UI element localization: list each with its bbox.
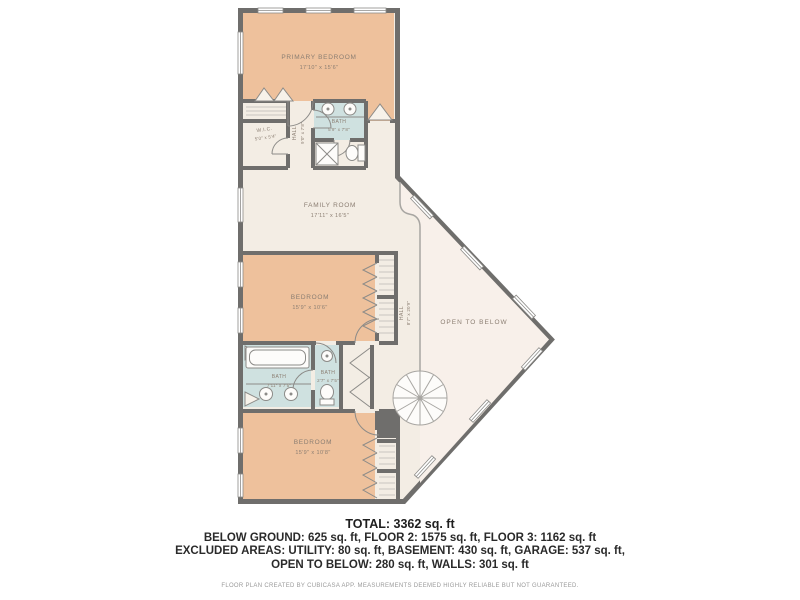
sink-icon [322,351,333,362]
excluded-areas: EXCLUDED AREAS: UTILITY: 80 sq. ft, BASE… [0,545,800,559]
label-family-room: FAMILY ROOM [304,202,356,209]
window [238,32,243,74]
label-open-to-below: OPEN TO BELOW [440,319,507,326]
window [238,188,243,222]
total-area: TOTAL: 3362 sq. ft [0,517,800,532]
room-fills [243,13,394,499]
label-bedroom-bottom-dims: 15'9" x 10'8" [295,450,330,456]
label-bedroom-bottom: BEDROOM [294,439,333,446]
window [238,474,243,497]
window [258,8,283,13]
window [354,8,386,13]
toilet-icon [320,385,334,406]
label-primary-bedroom-dims: 17'10" x 15'6" [300,65,339,71]
label-bedroom-mid: BEDROOM [291,294,330,301]
spiral-staircase-icon [393,371,447,425]
floor-plan-page: PRIMARY BEDROOM 17'10" x 15'6" W.I.C. 5'… [0,0,800,600]
label-primary-bedroom: PRIMARY BEDROOM [281,54,356,61]
label-bath-upper-dims: 5'9" x 7'8" [328,127,350,132]
label-bath-right: BATH [321,370,336,376]
label-bath-left-dims: 7'11" x 7'5" [267,383,291,388]
label-hall-mid: HALL [399,306,405,320]
label-bath-right-dims: 2'7" x 7'5" [317,378,339,383]
toilet-icon [346,145,365,161]
label-bedroom-mid-dims: 15'9" x 10'6" [292,305,327,311]
window [238,428,243,453]
floor-plan: PRIMARY BEDROOM 17'10" x 15'6" W.I.C. 5'… [0,0,800,512]
bathtub-icon [246,347,309,368]
shaft-wall [377,413,398,438]
window [238,262,243,287]
area-summary: TOTAL: 3362 sq. ft BELOW GROUND: 625 sq.… [0,517,800,572]
window [238,308,243,333]
window [306,8,331,13]
disclaimer-text: FLOOR PLAN CREATED BY CUBICASA APP. MEAS… [0,583,800,589]
label-family-room-dims: 17'11" x 16'5" [311,213,349,219]
label-bath-left: BATH [272,374,287,380]
label-hall-upper: HALL [292,126,298,140]
room-bedroom-bottom [243,413,375,499]
label-hall-upper-dims: 9'0" x 7'8" [300,122,305,144]
label-bath-upper: BATH [332,119,347,125]
label-hall-mid-dims: 8'7" x 20'9" [406,301,411,326]
excluded-areas-continued: OPEN TO BELOW: 280 sq. ft, WALLS: 301 sq… [0,559,800,573]
shower-icon [316,143,338,165]
floor-areas: BELOW GROUND: 625 sq. ft, FLOOR 2: 1575 … [0,532,800,546]
open-to-below-area [400,182,549,483]
